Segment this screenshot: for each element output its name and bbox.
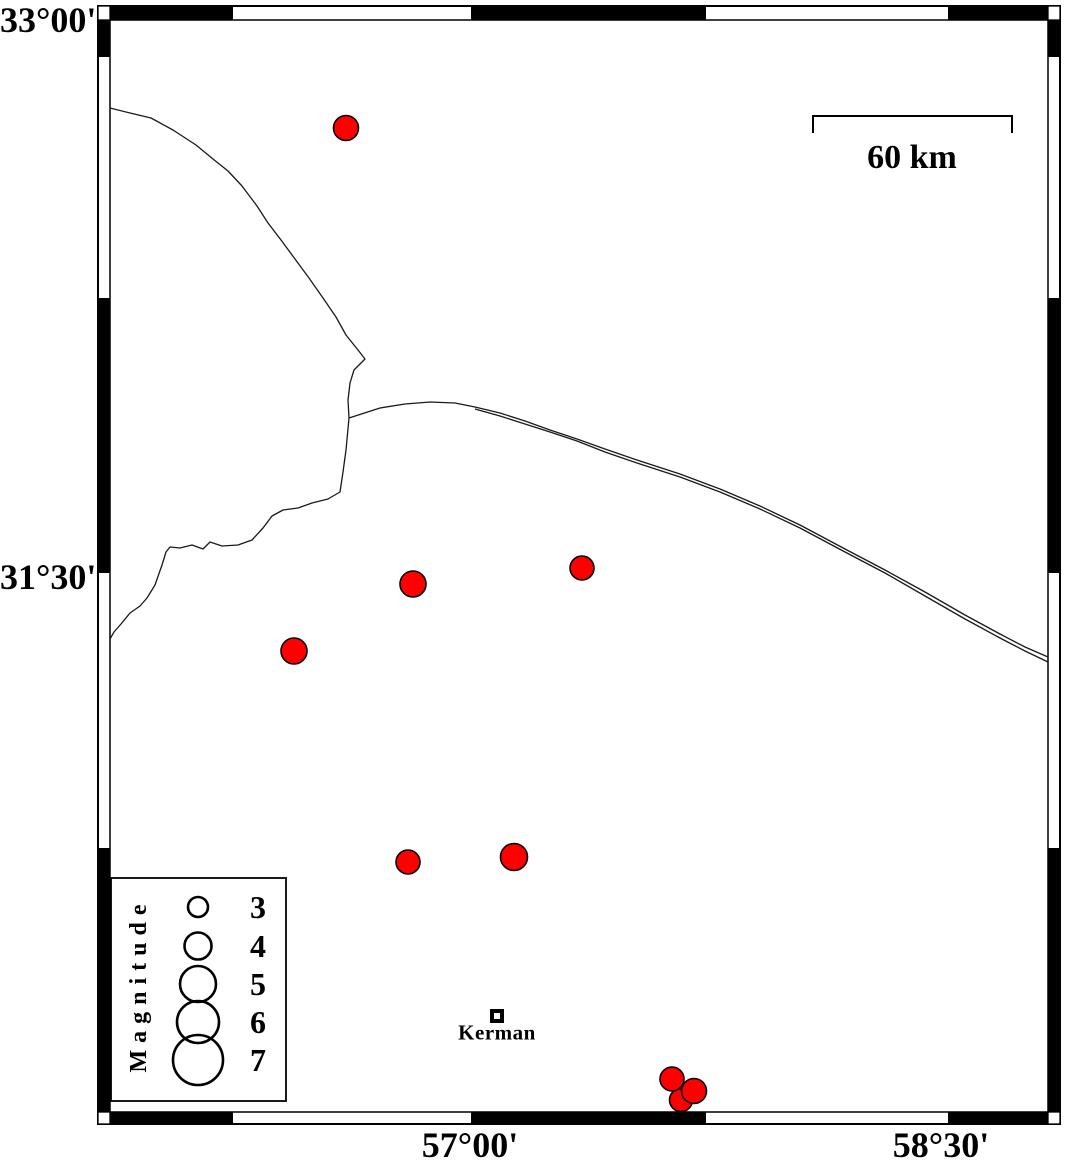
frame-corner-square <box>1048 6 1060 20</box>
scale-bar <box>813 116 1012 133</box>
frame-bottom-band-segment <box>471 1112 706 1124</box>
legend-magnitude-label: 3 <box>250 891 266 923</box>
frame-bottom-band-segment <box>110 1112 233 1124</box>
frame-top-band-segment <box>110 6 233 20</box>
frame-corner-square <box>98 1112 110 1124</box>
epicenter-marker <box>501 844 528 871</box>
longitude-label-58-30: 58°30' <box>893 1127 989 1163</box>
frame-right-band-segment <box>1048 20 1060 57</box>
river-line <box>110 108 365 418</box>
latitude-label-33-00: 33°00' <box>0 2 92 38</box>
legend-magnitude-label: 7 <box>250 1044 266 1076</box>
latitude-label-31-30: 31°30' <box>0 559 92 595</box>
frame-right-band-segment <box>1048 298 1060 573</box>
frame-top-band-segment <box>471 6 706 20</box>
epicenter-marker <box>281 638 307 664</box>
legend-magnitude-label: 6 <box>250 1006 266 1038</box>
epicenter-marker <box>570 556 594 580</box>
city-label: Kerman <box>458 1023 536 1044</box>
frame-right-band-segment <box>1048 848 1060 1112</box>
epicenter-marker <box>660 1067 684 1091</box>
epicenter-marker <box>682 1079 707 1104</box>
frame-corner-square <box>98 6 110 20</box>
frame-bottom-band-segment <box>948 1112 1048 1124</box>
frame-top-band-segment <box>948 6 1048 20</box>
frame-left-band-segment <box>98 20 110 57</box>
epicenter-marker <box>334 116 359 141</box>
epicenter-marker <box>400 571 426 597</box>
legend-magnitude-label: 4 <box>250 930 266 962</box>
longitude-label-57-00: 57°00' <box>422 1127 518 1163</box>
river-line <box>349 402 1048 657</box>
frame-left-band-segment <box>98 848 110 1112</box>
river-line <box>110 418 349 639</box>
seismicity-map-figure: 33°00' 31°30' 57°00' 58°30' 60 km Kerman… <box>0 0 1066 1163</box>
frame-corner-square <box>1048 1112 1060 1124</box>
scale-bar-label: 60 km <box>867 141 957 175</box>
legend-title: Magnitude <box>127 897 151 1072</box>
frame-left-band-segment <box>98 298 110 573</box>
epicenter-marker <box>396 850 420 874</box>
legend-magnitude-label: 5 <box>250 968 266 1000</box>
river-line <box>475 409 1048 662</box>
city-marker <box>492 1011 502 1021</box>
